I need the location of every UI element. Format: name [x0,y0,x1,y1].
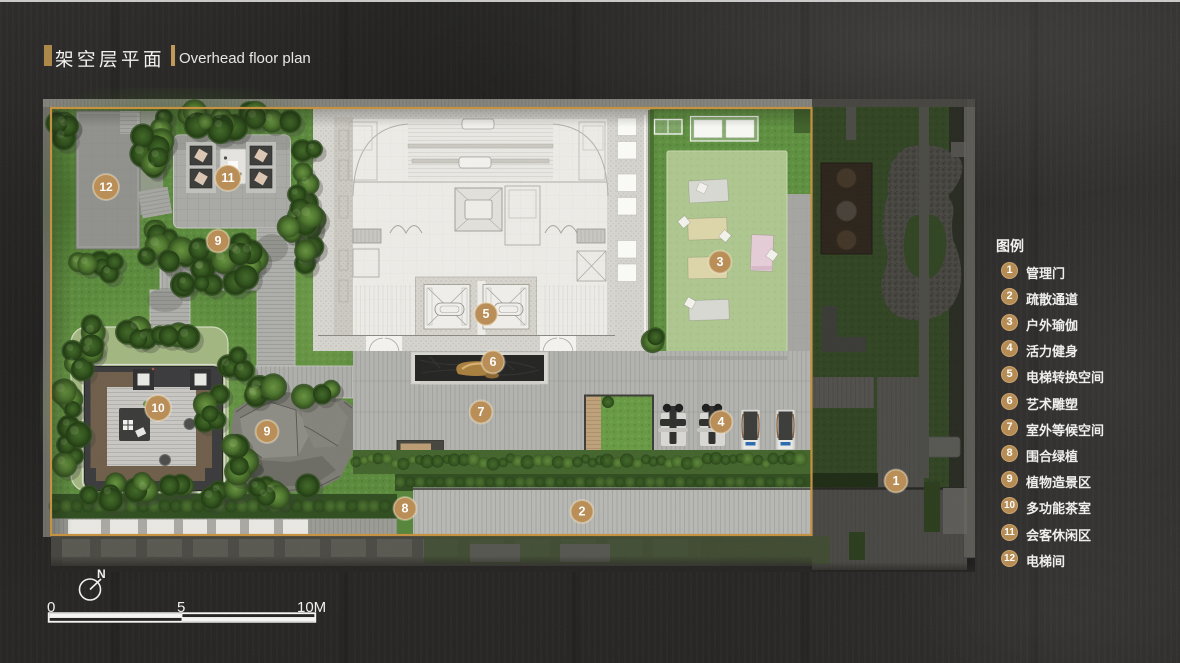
svg-text:4: 4 [718,415,725,429]
svg-text:11: 11 [221,171,234,185]
svg-text:1: 1 [893,474,900,488]
svg-text:2: 2 [579,505,586,519]
svg-text:12: 12 [99,180,113,194]
svg-text:8: 8 [402,502,409,516]
svg-text:9: 9 [215,234,222,248]
svg-text:7: 7 [478,405,485,419]
svg-text:10: 10 [151,401,165,415]
svg-text:5: 5 [483,307,490,321]
svg-text:6: 6 [490,355,497,369]
svg-text:N: N [97,567,106,581]
svg-text:3: 3 [717,255,724,269]
svg-text:9: 9 [264,425,271,439]
